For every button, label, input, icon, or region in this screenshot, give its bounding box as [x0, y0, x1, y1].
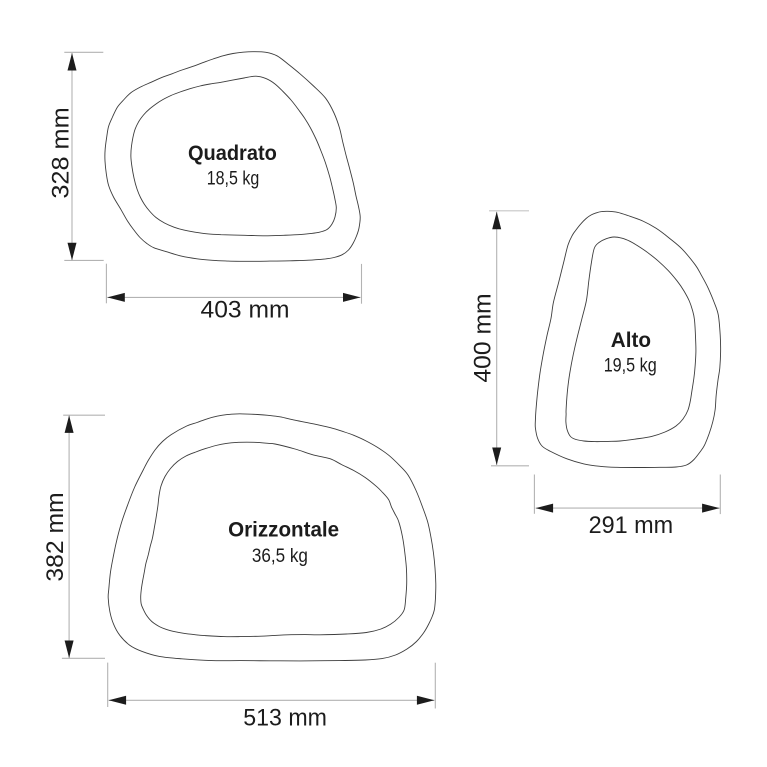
svg-text:513 mm: 513 mm — [243, 705, 327, 732]
svg-text:18,5 kg: 18,5 kg — [207, 169, 260, 190]
svg-text:403 mm: 403 mm — [201, 297, 290, 324]
svg-text:Quadrato: Quadrato — [188, 142, 277, 165]
svg-text:36,5 kg: 36,5 kg — [252, 546, 308, 567]
svg-text:328 mm: 328 mm — [48, 107, 75, 198]
svg-text:400 mm: 400 mm — [470, 293, 497, 382]
svg-text:Orizzontale: Orizzontale — [228, 519, 339, 542]
svg-text:19,5 kg: 19,5 kg — [604, 356, 657, 377]
svg-text:291 mm: 291 mm — [589, 512, 674, 539]
svg-text:382 mm: 382 mm — [42, 492, 69, 581]
svg-text:Alto: Alto — [611, 329, 651, 352]
